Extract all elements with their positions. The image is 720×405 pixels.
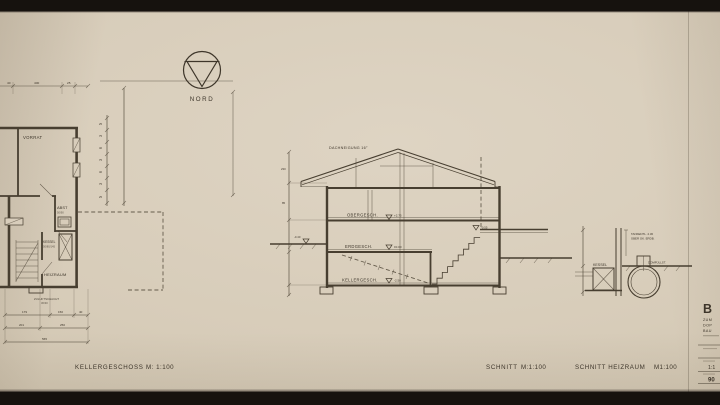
plan-dashed-outline (78, 90, 235, 290)
plan-dim-side-2: 75 (99, 134, 102, 138)
plan-dim-side-4: 75 (99, 158, 102, 162)
floor-label-og: OBERGESCH. (347, 213, 378, 218)
section-structure (320, 152, 506, 294)
section-floor-labels: OBERGESCH. +2.75 ERDGESCH. ±0.00 KELLERG… (294, 213, 488, 284)
plan-dim-b1-3: 40 (79, 310, 83, 314)
north-symbol: NORD (184, 52, 221, 104)
north-label: NORD (190, 96, 215, 103)
titleblock-scale: 1:1 (708, 365, 715, 371)
plan-dim-b1-1: 179 (22, 310, 27, 314)
plan-dim-side-6: 75 (99, 182, 102, 186)
tank-note-line1: TANKENTL. 2.30 (631, 232, 654, 236)
plan-dim-top-1: 40 (7, 81, 11, 85)
detail-title: SCHNITT HEIZRAUM (575, 364, 645, 371)
room-label-heizraum: HEIZRAUM (44, 272, 67, 277)
plan-windows (5, 138, 80, 225)
section-dim-1: 230 (281, 167, 286, 171)
plan-abst-fixture (58, 217, 71, 227)
room-label-abst: ABST (57, 205, 68, 210)
zuluft-note: 30/30 (41, 301, 48, 305)
plan-dim-b2-2: 250 (60, 323, 65, 327)
plan-dim-side-1: 25 (99, 122, 102, 126)
scan-band-bottom (0, 392, 720, 405)
plan-dim-b2-1: 201 (19, 323, 24, 327)
floor-label-eg: ERDGESCH. (345, 244, 373, 249)
section-scale: M:1:100 (521, 364, 546, 371)
zuluft-label: ZULUFTSCHACHT (34, 297, 59, 301)
kessel-note: 50/80/145 (43, 245, 55, 249)
north-circle-icon (184, 52, 221, 89)
plan-kessel-symbol (59, 234, 72, 260)
plan-dim-side-7: 25 (99, 195, 102, 199)
kessel-label: KESSEL (43, 240, 56, 244)
titleblock-sheet-number: 90 (708, 378, 715, 384)
door-leaf-vorrat (40, 184, 52, 196)
plan-dim-b1-2: 150 (58, 310, 63, 314)
roof-pitch-note: DACHNEIGUNG 16° (329, 146, 368, 150)
title-block: B ZUM DOP BAU 1:1 90 (689, 11, 720, 392)
titleblock-line3: BAU (703, 329, 712, 333)
drawing-titles: KELLERGESCHOSS M: 1:100 SCHNITT M:1:100 … (75, 364, 677, 371)
plan-dim-top-3: 25 (67, 81, 71, 85)
titleblock-line1: ZUM (703, 318, 712, 322)
room-label-vorrat: VORRAT (23, 135, 42, 140)
detail-kessel-symbol (593, 268, 614, 290)
building-section: 230 85 DACHNEIGUNG 16° (270, 146, 572, 297)
titleblock-big-letter: B (703, 302, 713, 316)
dome-label: DOMFÜLLST. (648, 261, 666, 265)
scan-band-top (0, 0, 720, 12)
tank-note-line2: ÜBER OK. ERDB. (631, 237, 655, 241)
drawing-canvas: 40 400 25 (0, 0, 720, 405)
section-title: SCHNITT (486, 364, 518, 371)
section-grade-lines (270, 244, 572, 263)
plan-dim-top-2: 400 (34, 81, 39, 85)
blueprint-sheet: 40 400 25 (0, 0, 720, 405)
floor-level-kg: -2.50 (394, 279, 401, 283)
floor-plan-kellergeschoss: 40 400 25 (0, 81, 235, 344)
heizraum-detail: KESSEL TANKENTL. 2.30 ÜBER OK. ERDB. DOM… (575, 226, 692, 298)
grade-level-right: -0.55 (481, 226, 488, 230)
section-dim-2: 85 (282, 201, 286, 205)
abst-note: 50/90 (57, 211, 64, 215)
plan-staircase (16, 240, 38, 282)
plan-side-dim-chain: 25 75 40 75 40 75 25 (99, 86, 126, 206)
plan-dim-side-5: 40 (99, 170, 102, 174)
detail-scale: M1:100 (654, 364, 677, 371)
plan-dim-side-3: 40 (99, 146, 102, 150)
grade-level-left: -0.40 (294, 235, 301, 239)
section-stairs (342, 230, 548, 285)
plan-dim-total: 565 (42, 337, 47, 341)
north-arrow-icon (187, 62, 217, 87)
section-dim-chain: 230 85 (281, 150, 327, 297)
floor-label-kg: KELLERGESCH. (342, 278, 378, 283)
plan-title: KELLERGESCHOSS (75, 364, 144, 371)
plan-scale: M: 1:100 (146, 364, 174, 371)
section-roof: DACHNEIGUNG 16° (301, 146, 500, 188)
detail-kessel-label: KESSEL (593, 263, 607, 267)
floor-level-og: +2.75 (394, 214, 402, 218)
floor-level-eg: ±0.00 (394, 245, 402, 249)
titleblock-line2: DOP (703, 324, 712, 328)
